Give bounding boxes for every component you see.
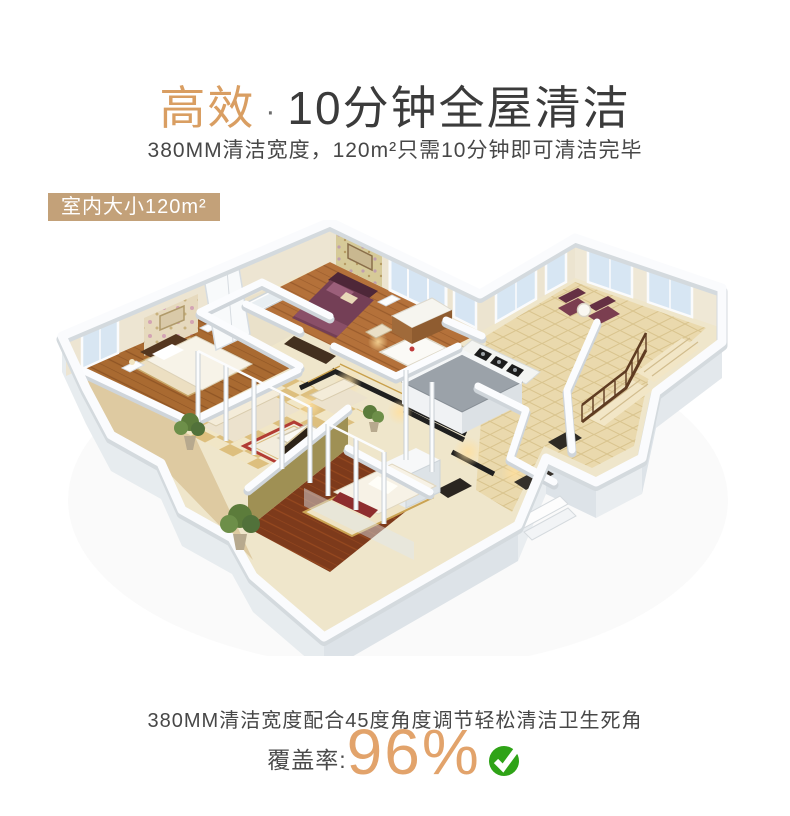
floorplan-image	[48, 220, 748, 656]
area-badge: 室内大小120m²	[48, 193, 220, 221]
title-main: 10分钟全屋清洁	[287, 82, 630, 134]
side-table	[578, 304, 591, 317]
title-separator: ·	[255, 95, 287, 128]
flowers	[410, 347, 415, 352]
coverage-row: 覆盖率:96%	[0, 716, 790, 782]
subtitle: 380MM清洁宽度，120m²只需10分钟即可清洁完毕	[0, 134, 790, 164]
coverage-value: 96%	[347, 723, 481, 782]
lamp	[129, 359, 135, 365]
coverage-label: 覆盖率:	[267, 741, 346, 782]
title-highlight: 高效	[159, 82, 255, 134]
promo-page: 高效·10分钟全屋清洁 380MM清洁宽度，120m²只需10分钟即可清洁完毕 …	[0, 0, 790, 816]
page-title: 高效·10分钟全屋清洁	[0, 81, 790, 136]
check-icon	[487, 742, 523, 778]
